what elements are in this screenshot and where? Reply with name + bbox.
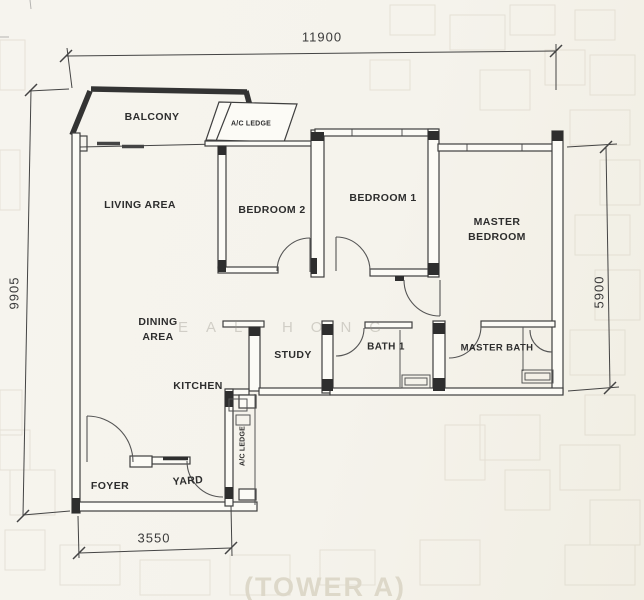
entrance-door-arc: [87, 416, 133, 462]
floor-plan-drawing: [0, 0, 644, 600]
dining-area-label: DINING AREA: [138, 315, 177, 345]
dining-area-label-line1: DINING: [138, 315, 177, 330]
bath1-label: BATH 1: [367, 342, 405, 353]
ac-ledge-top-label: A/C LEDGE: [231, 121, 271, 128]
master-bedroom-label-line1: MASTER: [468, 215, 526, 230]
bedroom2-label: BEDROOM 2: [238, 204, 305, 216]
master-bedroom-door-arc: [404, 280, 440, 316]
ac-ledge-side-label: A/C LEDGE: [240, 426, 247, 466]
watermark-text: EAL HONG: [178, 319, 399, 336]
tower-caption-ghost: (TOWER A): [244, 572, 406, 600]
dimension-bottom: 3550: [138, 531, 171, 546]
bedroom1-door-arc: [336, 237, 370, 271]
master-bedroom-label: MASTER BEDROOM: [468, 215, 526, 245]
dimension-right: 5900: [592, 276, 607, 309]
kitchen-label: KITCHEN: [173, 380, 222, 392]
master-bedroom-label-line2: BEDROOM: [468, 230, 526, 245]
balcony-sliding-door: [73, 136, 219, 151]
floor-plan-page: EAL HONG (TOWER A) BALCONY A/C LEDGE LIV…: [0, 0, 644, 600]
yard-label: YARD: [172, 474, 203, 488]
balcony-label: BALCONY: [125, 111, 180, 123]
dimension-left: 9905: [7, 277, 22, 310]
dining-area-label-line2: AREA: [138, 330, 177, 345]
scan-marks: [0, 0, 31, 37]
dimension-top: 11900: [302, 30, 342, 45]
living-area-label: LIVING AREA: [104, 199, 176, 211]
master-bath-label: MASTER BATH: [461, 343, 534, 354]
study-label: STUDY: [274, 349, 312, 361]
bedroom2-door-arc: [277, 238, 310, 271]
fixtures: [229, 370, 553, 425]
foyer-label: FOYER: [91, 480, 129, 492]
bedroom1-label: BEDROOM 1: [349, 192, 416, 204]
